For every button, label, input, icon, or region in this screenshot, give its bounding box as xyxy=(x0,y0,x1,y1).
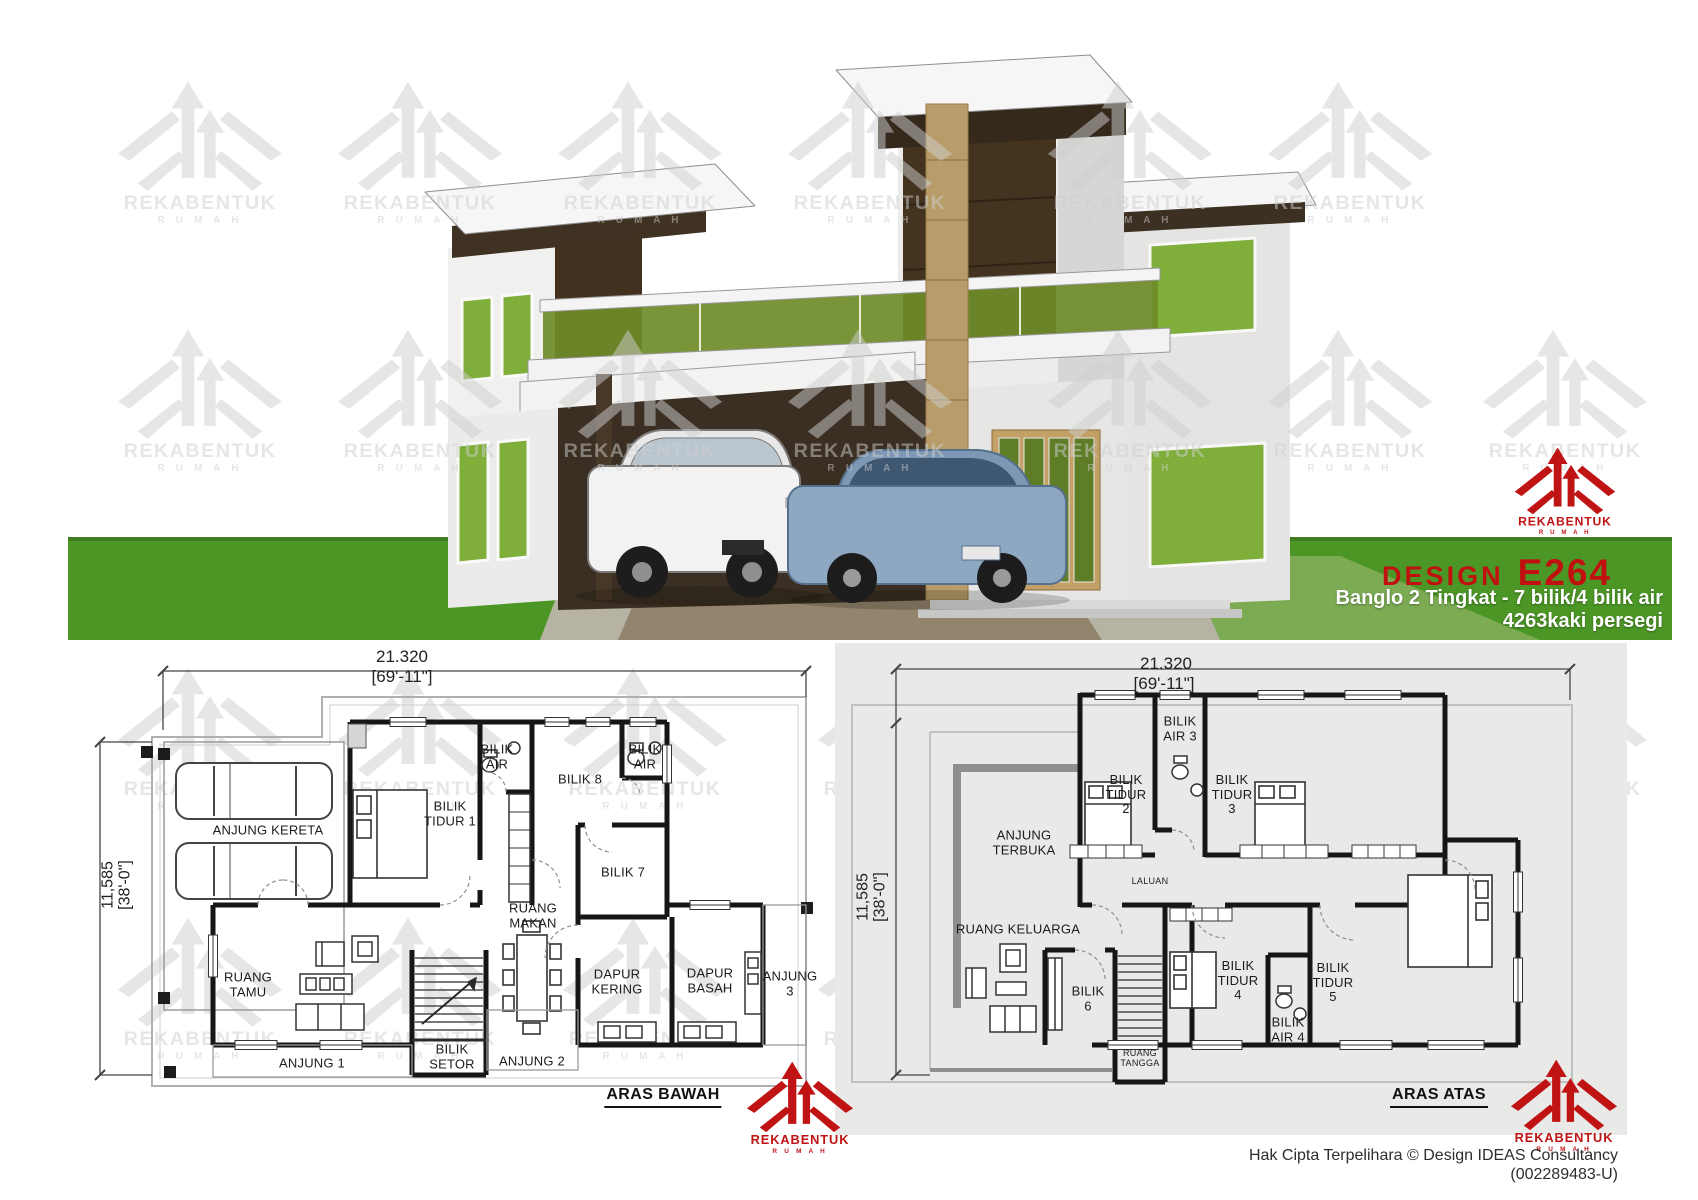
room-label-anjung-1: ANJUNG 1 xyxy=(279,1057,345,1072)
upper-width-dim: 21.320 xyxy=(1140,655,1192,673)
room-label-bilik-7: BILIK 7 xyxy=(600,866,646,881)
living-set xyxy=(296,936,378,1030)
room-label-ruang-tamu: RUANG TAMU xyxy=(218,970,278,999)
room-label-bilik-air-3: BILIK AIR 3 xyxy=(1158,714,1202,743)
rekabentuk-logo-red-top xyxy=(1515,447,1616,536)
room-label-anjung-2: ANJUNG 2 xyxy=(499,1055,565,1070)
upper-depth-dim: 11,585 [38'-0"] xyxy=(855,872,890,922)
ground-width-dim: 21.320 xyxy=(376,648,428,666)
room-label-anjung-kereta: ANJUNG KERETA xyxy=(213,824,324,839)
room-label-bilik-setor: BILIK SETOR xyxy=(423,1042,481,1071)
room-label-bilik-tidur-3: BILIK TIDUR 3 xyxy=(1207,773,1257,817)
room-label-ruang-tangga: RUANG TANGGA xyxy=(1115,1048,1165,1068)
room-label-bilik-6: BILIK 6 xyxy=(1067,984,1109,1013)
upper-depth-dim-ft: [38'-0"] xyxy=(872,872,889,922)
ground-depth-dim: 11,585 [38'-0"] xyxy=(100,860,135,910)
ground-width-dim-ft: [69'-11"] xyxy=(372,668,433,686)
copyright-block: Hak Cipta Terpelihara © Design IDEAS Con… xyxy=(1249,1146,1618,1184)
room-label-bilik-8: BILIK 8 xyxy=(557,773,603,788)
room-label-bilik-air-b: BILIK AIR xyxy=(622,742,668,771)
room-label-dapur-kering: DAPUR KERING xyxy=(584,967,650,996)
ground-floor-title: ARAS BAWAH xyxy=(604,1086,721,1108)
ground-stairs xyxy=(412,958,486,1040)
design-area: 4263kaki persegi xyxy=(1336,610,1664,633)
room-label-bilik-tidur-4: BILIK TIDUR 4 xyxy=(1213,959,1263,1003)
wardrobe xyxy=(509,794,530,902)
room-label-bilik-air-a: BILIK AIR xyxy=(474,742,520,771)
room-label-bilik-tidur-5: BILIK TIDUR 5 xyxy=(1308,961,1358,1005)
room-label-bilik-air-4: BILIK AIR 4 xyxy=(1266,1015,1310,1044)
room-label-dapur-basah: DAPUR BASAH xyxy=(679,966,741,995)
ground-depth-dim-m: 11,585 xyxy=(100,860,117,910)
upper-floor-title: ARAS ATAS xyxy=(1390,1086,1488,1108)
poster: REKABENTUK R U M A H xyxy=(0,0,1698,1200)
room-label-bilik-tidur-2: BILIK TIDUR 2 xyxy=(1101,773,1151,817)
room-label-anjung-3: ANJUNG 3 xyxy=(761,969,819,998)
room-label-ruang-makan: RUANG MAKAN xyxy=(501,901,565,930)
bed-bilik-tidur-1 xyxy=(353,790,427,878)
room-label-laluan: LALUAN xyxy=(1132,876,1169,886)
registration-number: (002289483-U) xyxy=(1249,1165,1618,1184)
ground-floor-plan xyxy=(95,666,813,1086)
upper-depth-dim-m: 11,585 xyxy=(855,872,872,922)
design-subtitle: Banglo 2 Tingkat - 7 bilik/4 bilik air xyxy=(1336,587,1664,610)
design-subtitle-block: Banglo 2 Tingkat - 7 bilik/4 bilik air 4… xyxy=(1336,587,1664,633)
room-label-ruang-keluarga: RUANG KELUARGA xyxy=(956,923,1080,938)
room-label-anjung-terbuka: ANJUNG TERBUKA xyxy=(981,828,1067,857)
ground-depth-dim-ft: [38'-0"] xyxy=(117,860,134,910)
copyright-text: Hak Cipta Terpelihara © Design IDEAS Con… xyxy=(1249,1146,1618,1165)
upper-width-dim-ft: [69'-11"] xyxy=(1134,675,1195,693)
room-label-bilik-tidur-1: BILIK TIDUR 1 xyxy=(422,799,478,828)
